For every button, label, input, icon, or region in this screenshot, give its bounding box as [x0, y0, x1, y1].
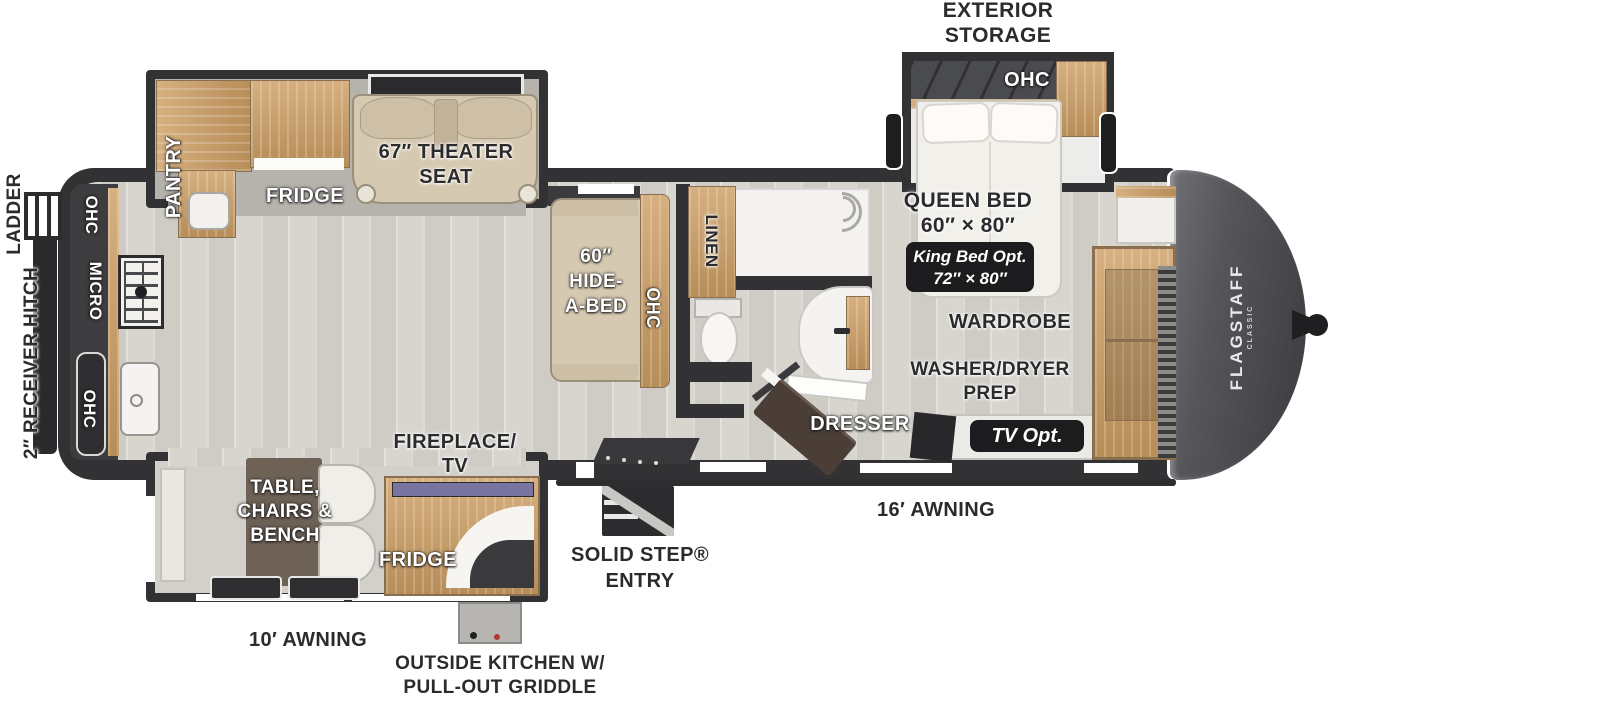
fireplace-line2: TV: [370, 454, 540, 478]
floor-mat: [210, 576, 282, 600]
hitch-coupler: [1306, 314, 1328, 336]
floor-mat: [288, 576, 360, 600]
king-bed-option-badge: King Bed Opt. 72″ × 80″: [906, 242, 1034, 292]
outside-kitchen-line2: PULL-OUT GRIDDLE: [360, 676, 640, 700]
window-bottom-3: [1084, 463, 1138, 473]
bath-faucet: [834, 328, 850, 334]
bench-seat: [160, 468, 186, 582]
dinette-window-left: [146, 496, 155, 582]
queen-bed-line2: 60″ × 80″: [888, 213, 1048, 238]
fridge-counter-strip: [254, 158, 344, 170]
wardrobe-label: WARDROBE: [930, 310, 1090, 334]
entry-opening: [576, 462, 594, 478]
theater-seat-line2: SEAT: [346, 165, 546, 190]
bedroom-ohc-label: OHC: [977, 68, 1077, 92]
solid-step-line1: SOLID STEP®: [560, 542, 720, 568]
entry-door: [592, 438, 700, 464]
bed-pillow-right: [989, 102, 1058, 144]
floorplan-canvas: FLAGSTAFF CLASSIC: [0, 0, 1600, 703]
window-bottom-1: [700, 462, 766, 472]
table-line2: CHAIRS &: [220, 500, 350, 524]
sofa-armrest-bottom: [552, 364, 638, 380]
king-opt-line1: King Bed Opt.: [906, 246, 1034, 268]
outside-kitchen-label: OUTSIDE KITCHEN W/ PULL-OUT GRIDDLE: [360, 652, 640, 700]
queen-bed-line1: QUEEN BED: [888, 188, 1048, 213]
solid-step-line2: ENTRY: [560, 568, 720, 594]
fireplace-tv-label: FIREPLACE/ TV: [370, 430, 540, 478]
toilet-bowl: [700, 312, 738, 366]
theater-seat-back-right: [454, 97, 532, 139]
washer-dryer-line2: PREP: [898, 382, 1082, 406]
griddle-indicator: [494, 634, 500, 640]
brand-name: FLAGSTAFF: [1227, 242, 1247, 412]
theater-seat-back-left: [360, 97, 438, 139]
ladder-rung: [47, 196, 51, 236]
pantry-label: PANTRY: [162, 89, 182, 265]
solid-step-label: SOLID STEP® ENTRY: [560, 542, 720, 594]
wardrobe-shelf-line: [1105, 339, 1161, 342]
tv-option-badge: TV Opt.: [970, 420, 1084, 452]
rear-ohc-bottom-label: OHC: [79, 381, 99, 437]
receiver-hitch-label: 2″ RECEIVER HITCH: [21, 251, 41, 475]
sink-drain: [130, 394, 143, 407]
bedroom-window-right: [1099, 112, 1118, 174]
linen-label: LINEN: [701, 199, 721, 283]
fridge-label: FRIDGE: [250, 184, 360, 208]
window-top-mid: [578, 184, 634, 194]
exterior-storage-label: EXTERIOR STORAGE: [880, 0, 1116, 48]
fridge-cabinet: [250, 80, 350, 168]
bathroom-wall-stub: [688, 404, 744, 418]
sofa-armrest-top: [552, 200, 638, 216]
bed-pillow-left: [921, 102, 990, 144]
theater-seat-line1: 67″ THEATER: [346, 140, 546, 165]
outside-kitchen-line1: OUTSIDE KITCHEN W/: [360, 652, 640, 676]
ladder-icon: [24, 192, 62, 240]
window-bottom-2: [860, 463, 952, 473]
fireplace-insert: [470, 540, 534, 588]
washer-dryer-line1: WASHER/DRYER: [898, 358, 1082, 382]
kitchen-sink: [120, 362, 160, 436]
pantry-sink-inset: [188, 192, 230, 230]
step-rail: [602, 486, 674, 536]
front-cabinet-shelf: [1116, 186, 1176, 198]
brand-mark: FLAGSTAFF CLASSIC: [1227, 242, 1267, 412]
exterior-storage-line1: EXTERIOR: [880, 0, 1116, 23]
wardrobe-interior: [1105, 269, 1163, 421]
outside-fridge-label: FRIDGE: [366, 548, 470, 572]
dresser-label: DRESSER: [800, 412, 920, 436]
tv-screen-strip: [392, 482, 534, 497]
ladder-rung: [35, 196, 39, 236]
table-chairs-bench-label: TABLE, CHAIRS & BENCH: [220, 476, 350, 548]
king-opt-line2: 72″ × 80″: [906, 268, 1034, 290]
sofa-ohc-label: OHC: [643, 266, 663, 350]
micro-label: MICRO: [85, 249, 105, 333]
front-louver-cabinet: [1158, 266, 1176, 458]
toilet-base: [688, 362, 752, 382]
exterior-storage-line2: STORAGE: [880, 23, 1116, 48]
awning-10-label: 10′ AWNING: [218, 628, 398, 652]
stove-knob: [135, 286, 147, 298]
entry-door-rivet: [606, 456, 610, 460]
hide-a-bed-line1: 60″: [546, 244, 646, 269]
hide-a-bed-label: 60″ HIDE- A-BED: [546, 244, 646, 319]
stove-cooktop: [118, 255, 164, 329]
washer-dryer-label: WASHER/DRYER PREP: [898, 358, 1082, 406]
griddle-knob: [470, 632, 477, 639]
rear-ohc-top-label: OHC: [81, 187, 101, 243]
queen-bed-label: QUEEN BED 60″ × 80″: [888, 188, 1048, 238]
fireplace-line1: FIREPLACE/: [370, 430, 540, 454]
hide-a-bed-line3: A-BED: [546, 294, 646, 319]
brand-series: CLASSIC: [1247, 242, 1255, 412]
awning-16-label: 16′ AWNING: [846, 498, 1026, 522]
theater-seat-label: 67″ THEATER SEAT: [346, 140, 546, 190]
step-tread: [604, 514, 638, 519]
entry-steps: [602, 486, 674, 536]
table-line1: TABLE,: [220, 476, 350, 500]
awning-rail-16: [556, 479, 1176, 486]
bedroom-window-left: [884, 112, 903, 170]
table-line3: BENCH: [220, 524, 350, 548]
hide-a-bed-line2: HIDE-: [546, 269, 646, 294]
outside-griddle-box: [458, 602, 522, 644]
